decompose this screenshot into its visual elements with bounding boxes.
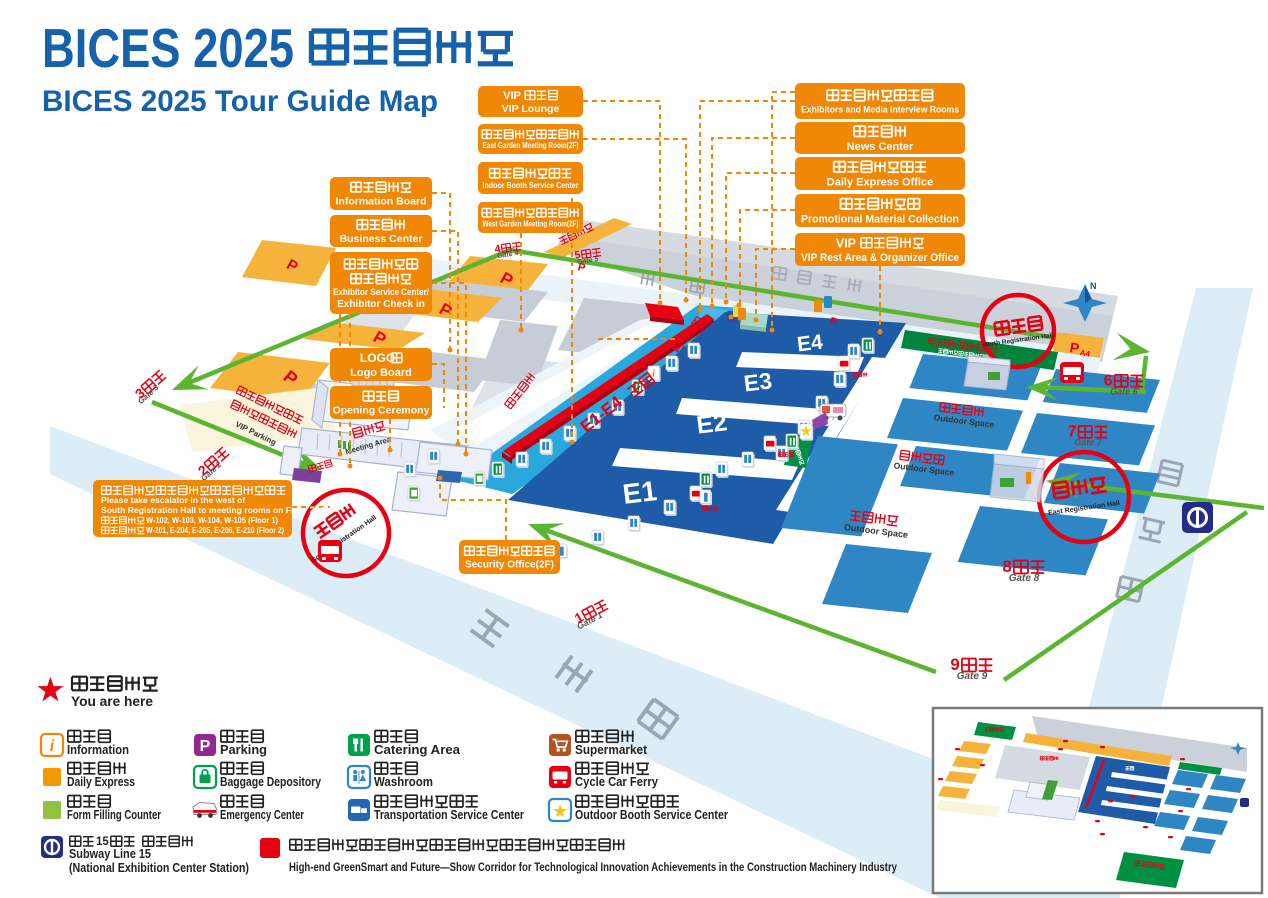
svg-text:News Center: News Center	[847, 141, 914, 153]
svg-text:You are here: You are here	[71, 693, 153, 709]
svg-text:VIP Rest Area & Organizer Offi: VIP Rest Area & Organizer Office	[801, 252, 959, 264]
svg-text:Parking: Parking	[220, 743, 267, 757]
svg-text:Indoor Booth Service Center: Indoor Booth Service Center	[483, 181, 579, 190]
svg-text:Subway Line 15: Subway Line 15	[69, 847, 151, 861]
svg-text:★: ★	[553, 804, 568, 821]
svg-text:E1: E1	[621, 475, 659, 510]
svg-text:BICES 2025: BICES 2025	[42, 17, 294, 79]
svg-text:South Registration Hall to mee: South Registration Hall to meeting rooms…	[101, 505, 328, 515]
svg-text:W-102, W-103, W-104, W-105 (Fl: W-102, W-103, W-104, W-105 (Floor 1)	[146, 515, 278, 525]
svg-text:Please take escalator in the w: Please take escalator in the west of	[101, 495, 245, 505]
svg-text:Exhibitors and Media Interview: Exhibitors and Media Interview Rooms	[801, 104, 959, 115]
svg-text:Information: Information	[67, 743, 129, 757]
svg-text:Outdoor Booth Service Center: Outdoor Booth Service Center	[575, 808, 728, 822]
svg-text:E3: E3	[742, 367, 773, 396]
svg-text:Supermarket: Supermarket	[575, 743, 648, 757]
svg-text:High-end GreenSmart and Future: High-end GreenSmart and Future—Show Corr…	[289, 860, 897, 874]
svg-text:★: ★	[37, 674, 64, 707]
svg-text:Washroom: Washroom	[374, 775, 433, 789]
svg-text:E2: E2	[695, 408, 729, 440]
svg-text:Gate 8: Gate 8	[1009, 573, 1040, 584]
svg-text:Security Office(2F): Security Office(2F)	[465, 559, 554, 570]
svg-text:VIP Lounge: VIP Lounge	[502, 103, 560, 115]
svg-text:Exhibitor Service Center/: Exhibitor Service Center/	[333, 287, 429, 297]
svg-text:Daily Express: Daily Express	[67, 775, 135, 789]
svg-text:Emergency Center: Emergency Center	[220, 808, 304, 822]
svg-text:Information Board: Information Board	[336, 196, 427, 208]
svg-text:★: ★	[800, 424, 812, 439]
svg-text:Logo Board: Logo Board	[350, 367, 412, 379]
svg-text:VIP: VIP	[503, 90, 521, 102]
svg-text:East Garden Meeting Room(2F): East Garden Meeting Room(2F)	[483, 141, 579, 150]
svg-text:Cycle Car Ferry: Cycle Car Ferry	[575, 775, 658, 789]
svg-text:West Garden Meeting Room(2F): West Garden Meeting Room(2F)	[483, 220, 579, 229]
svg-text:Daily Express Office: Daily Express Office	[827, 176, 933, 188]
svg-text:Gate 9: Gate 9	[957, 671, 988, 682]
svg-text:BICES 2025 Tour Guide Map: BICES 2025 Tour Guide Map	[42, 85, 438, 118]
svg-text:Opening Ceremony: Opening Ceremony	[333, 405, 430, 417]
svg-text:Form Filling Counter: Form Filling Counter	[67, 808, 161, 822]
svg-text:LOGO: LOGO	[360, 351, 395, 365]
svg-text:Promotional Material Collectio: Promotional Material Collection	[801, 213, 959, 225]
svg-text:VIP: VIP	[836, 236, 856, 250]
svg-text:W-201, E-204, E-205, E-206, E-: W-201, E-204, E-205, E-206, E-210 (Floor…	[146, 525, 284, 535]
svg-text:Gate 7: Gate 7	[1074, 437, 1103, 447]
svg-text:E4: E4	[796, 330, 825, 356]
svg-text:N: N	[1090, 281, 1097, 291]
svg-text:i: i	[50, 738, 55, 755]
svg-text:i: i	[652, 368, 655, 379]
svg-text:Exhibitor Check in: Exhibitor Check in	[337, 299, 425, 310]
svg-text:Catering Area: Catering Area	[374, 743, 461, 757]
svg-text:(National Exhibition Center St: (National Exhibition Center Station)	[69, 861, 249, 875]
svg-text:P: P	[200, 738, 211, 755]
svg-text:Baggage Depository: Baggage Depository	[220, 775, 321, 789]
svg-text:Transportation Service Center: Transportation Service Center	[374, 808, 524, 822]
svg-text:Gate 6: Gate 6	[1110, 386, 1139, 396]
svg-text:Business Center: Business Center	[340, 233, 423, 245]
